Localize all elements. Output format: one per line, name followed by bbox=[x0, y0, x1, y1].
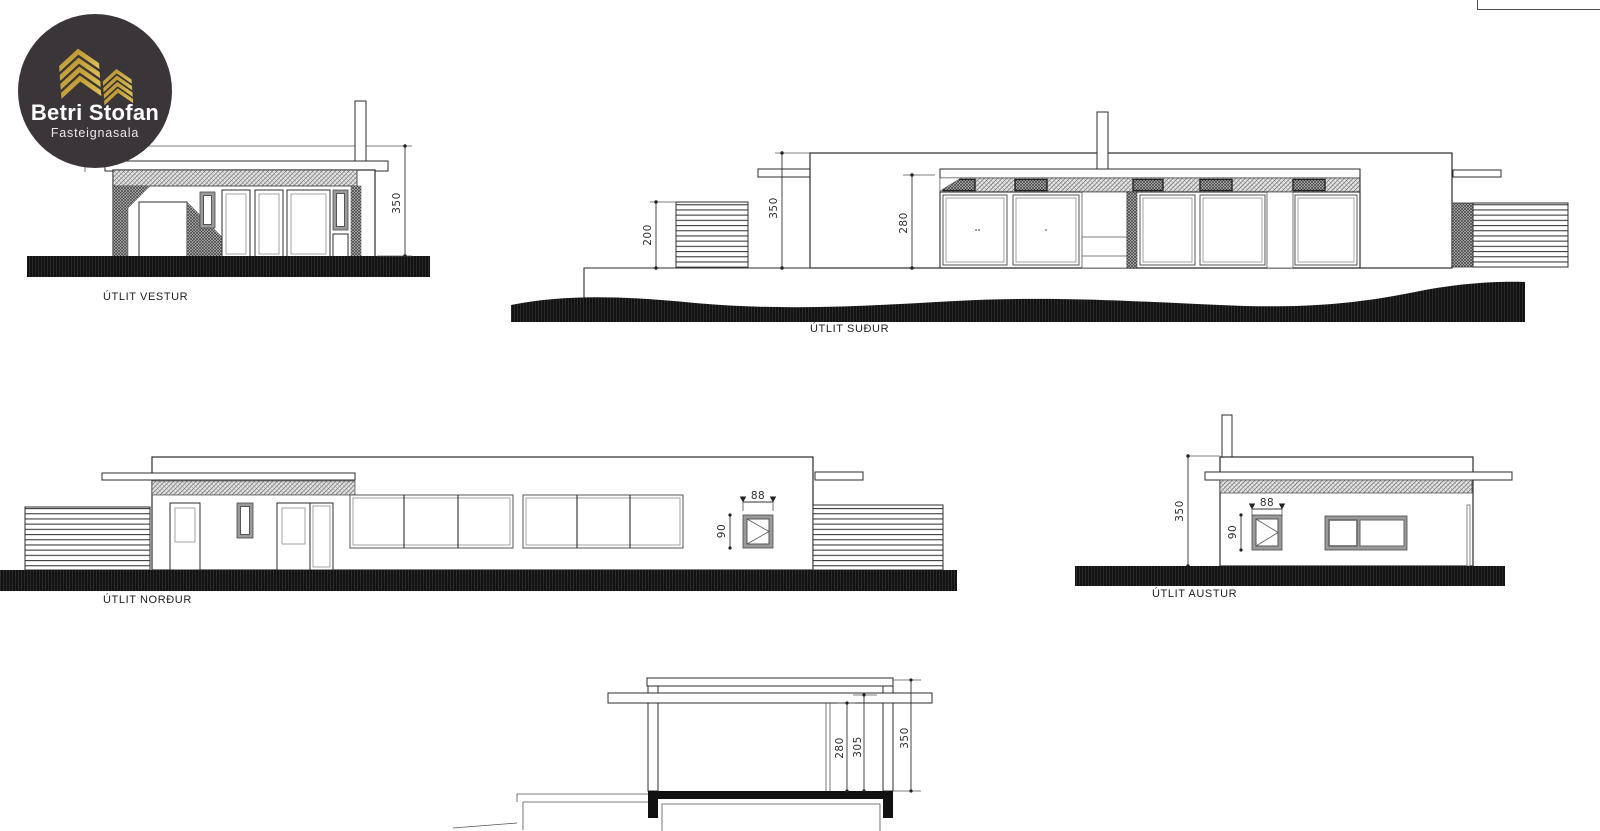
logo-graphic bbox=[18, 14, 172, 168]
south-dim-200-text: 200 bbox=[642, 224, 654, 246]
north-fascia bbox=[102, 473, 355, 480]
north-ground-band bbox=[0, 570, 957, 591]
east-dim-350-text: 350 bbox=[1174, 500, 1186, 522]
drawing-sheet: 350 ÚTLIT VESTUR 200 350 bbox=[0, 0, 1600, 831]
west-windows bbox=[200, 190, 348, 258]
section-fascia bbox=[608, 693, 932, 703]
north-casement-window bbox=[743, 515, 773, 548]
agency-logo: Betri Stofan Fasteignasala bbox=[18, 14, 172, 168]
west-door-recess bbox=[139, 202, 187, 258]
section-floor-slab bbox=[657, 791, 883, 799]
south-fascia bbox=[940, 169, 1360, 178]
south-elevation-drawing: 200 350 280 bbox=[505, 95, 1600, 340]
east-fascia bbox=[1205, 472, 1512, 480]
section-roof-slab bbox=[647, 678, 893, 686]
west-roof-hatch-band bbox=[113, 170, 357, 186]
south-terrain-band bbox=[511, 282, 1525, 322]
east-roof-hatch-band bbox=[1220, 480, 1472, 493]
south-fence-right bbox=[1473, 203, 1568, 267]
east-downspout bbox=[1467, 505, 1470, 566]
section-dim-305: 305 bbox=[852, 693, 877, 792]
section-dim-350-text: 350 bbox=[899, 727, 911, 749]
south-fascia-right bbox=[1453, 170, 1501, 177]
west-dim-350-text: 350 bbox=[391, 192, 403, 214]
section-terrace-steps bbox=[453, 794, 648, 830]
section-drawing: 280 305 350 bbox=[425, 655, 940, 831]
south-roof-overhang-left bbox=[758, 169, 810, 177]
east-ground-band bbox=[1075, 566, 1505, 586]
north-roof-hatch-band bbox=[152, 481, 355, 495]
east-double-window bbox=[1325, 516, 1407, 550]
east-dim-88-text: 88 bbox=[1260, 497, 1274, 509]
titleblock-corner bbox=[1477, 0, 1600, 10]
west-chimney bbox=[355, 101, 366, 163]
south-stair-column bbox=[1082, 192, 1127, 268]
west-elevation-label: ÚTLIT VESTUR bbox=[103, 291, 188, 303]
logo-title: Betri Stofan bbox=[18, 100, 172, 126]
section-dim-305-text: 305 bbox=[852, 736, 864, 758]
south-chimney bbox=[1097, 112, 1108, 169]
section-foundation bbox=[662, 804, 880, 831]
east-dim-90-text: 90 bbox=[1227, 525, 1239, 539]
west-hatched-wall-right bbox=[351, 186, 361, 258]
south-dim-280-text: 280 bbox=[898, 212, 910, 234]
east-elevation-label: ÚTLIT AUSTUR bbox=[1152, 588, 1237, 600]
east-casement-window bbox=[1252, 515, 1282, 550]
north-fascia-right bbox=[815, 472, 863, 480]
east-elevation-drawing: 88 90 350 bbox=[1070, 395, 1530, 610]
north-elevation-label: ÚTLIT NORÐUR bbox=[103, 594, 192, 606]
south-dim-350-text: 350 bbox=[768, 197, 780, 219]
east-dim-350: 350 bbox=[1174, 454, 1220, 567]
south-dim-200: 200 bbox=[642, 200, 676, 269]
south-elevation-label: ÚTLIT SUÐUR bbox=[810, 323, 889, 335]
north-dim-88-text: 88 bbox=[751, 490, 765, 502]
north-dim-90-text: 90 bbox=[716, 524, 728, 538]
south-fence-left bbox=[676, 202, 748, 268]
logo-subtitle: Fasteignasala bbox=[18, 126, 172, 140]
north-fence-left bbox=[25, 507, 150, 570]
south-clerestory-band bbox=[940, 178, 1360, 192]
section-dim-280-text: 280 bbox=[834, 737, 846, 759]
north-fence-right bbox=[813, 505, 943, 570]
north-elevation-drawing: 88 90 bbox=[0, 430, 960, 610]
south-fence-hatched-post bbox=[1452, 203, 1473, 267]
west-ground-band bbox=[27, 256, 430, 277]
